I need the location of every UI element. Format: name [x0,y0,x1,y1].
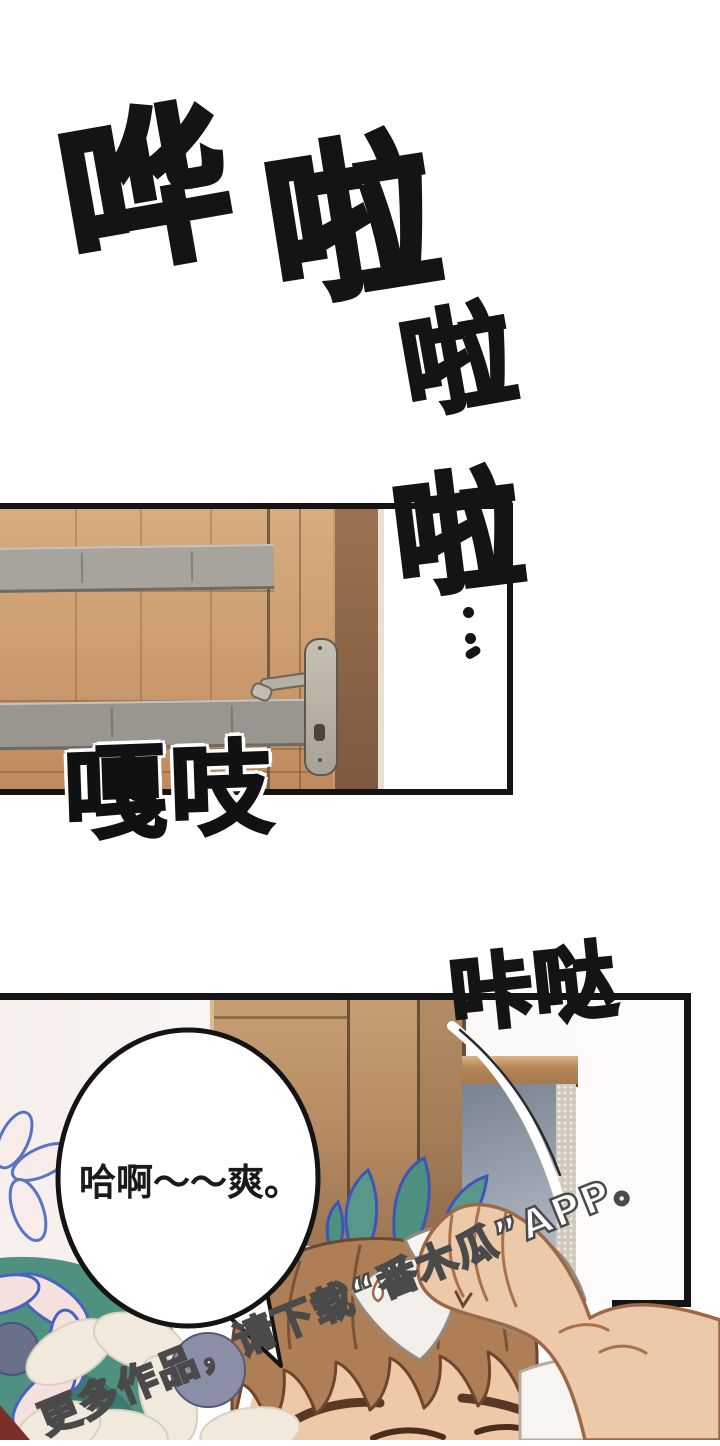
right-closed-eye [477,1427,545,1435]
door-frame-strip [333,509,380,789]
right-eyebrow [462,1398,540,1418]
mirror-frame-top [462,1056,578,1087]
door-kick-plate-top [0,544,274,593]
sfx-click-text: 咔哒 [446,939,622,1038]
kick-plate-mark [81,553,83,583]
handle-screw [318,758,322,762]
comic-page: { "page": { "kind": "webtoon-comic-page"… [0,0,720,1440]
left-closed-eye [373,1430,443,1438]
panel2-border-bottom [612,1300,691,1307]
panel2-border-right [684,993,691,1307]
trailing-dot-1 [463,607,474,618]
sfx-hua-text: 哗 [49,95,244,290]
corner-red-patch [0,1405,30,1440]
wardrobe-rail-line [214,1016,350,1019]
sfx-la3-text: 啦 [387,465,530,608]
speech-bubble-text: 哈啊～～爽。 [70,1152,310,1206]
sfx-la2-text: 啦 [393,297,523,427]
door-edge-highlight [378,509,384,789]
handle-screw [318,646,322,650]
kick-plate-mark [111,708,113,738]
sfx-la1-text: 啦 [256,126,448,318]
sfx-creak-text: 嘎吱 [62,738,277,847]
wardrobe [210,1000,466,1246]
door-stile-line [299,509,301,789]
left-eyebrow [292,1402,380,1422]
trailing-dot-2 [465,633,476,644]
door-handle-plate [304,638,338,776]
door-keyhole [314,724,325,741]
pink-flower-center [0,1323,38,1375]
wardrobe-panel-line [347,1000,350,1246]
kick-plate-mark [191,551,193,581]
